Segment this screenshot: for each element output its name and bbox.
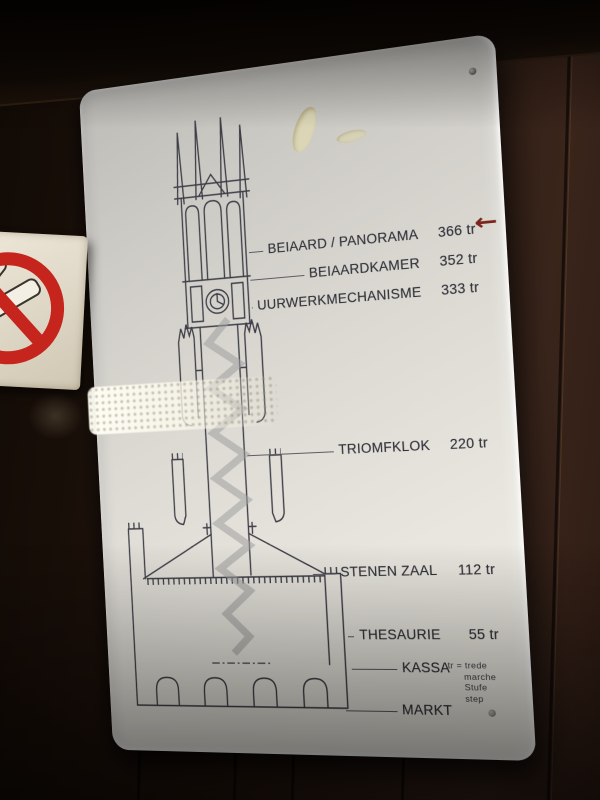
leader-line <box>346 710 397 712</box>
photo-of-belfry-sign: BEIAARD / PANORAMA 366 tr BEIAARDKAMER 3… <box>0 0 600 800</box>
leader-line <box>250 275 304 281</box>
level-label: TRIOMFKLOK <box>338 438 431 458</box>
level-row-kassa: KASSA <box>351 660 450 679</box>
leader-line <box>249 251 263 253</box>
level-steps: 112 tr <box>446 561 496 577</box>
left-arrow-icon: ← <box>474 209 499 234</box>
staircase-zigzag <box>207 318 255 653</box>
leader-line <box>352 669 397 670</box>
level-row-thesaurie: THESAURIE 55 tr <box>347 627 499 646</box>
market-hall <box>128 520 348 708</box>
level-steps: 352 tr <box>429 250 478 270</box>
legend-line: tr = trede <box>447 660 495 671</box>
flash-glow <box>28 392 83 440</box>
belfry-floor-sign: BEIAARD / PANORAMA 366 tr BEIAARDKAMER 3… <box>79 33 536 761</box>
level-steps: 333 tr <box>430 279 479 299</box>
steps-legend: tr = trede marche Stufe step <box>447 660 497 704</box>
legend-line: Stufe <box>464 682 497 693</box>
level-label: KASSA <box>402 660 451 676</box>
leader-line <box>247 451 333 456</box>
wood-plank-gap <box>546 0 572 800</box>
screw <box>488 709 496 716</box>
no-smoking-sign <box>0 230 88 390</box>
legend-line: step <box>465 693 498 704</box>
leader-line <box>313 574 336 575</box>
level-steps: 220 tr <box>439 435 488 453</box>
level-label: THESAURIE <box>359 627 441 643</box>
level-label: MARKT <box>402 702 453 718</box>
level-row-markt: MARKT <box>346 701 453 721</box>
leader-line <box>348 636 355 637</box>
level-steps: 55 tr <box>450 627 500 643</box>
belfry-arches <box>185 198 243 282</box>
wood-plank-highlight <box>550 0 574 800</box>
level-steps: 366 tr <box>427 221 476 241</box>
level-label: STENEN ZAAL <box>340 563 438 580</box>
leader-line <box>252 307 253 308</box>
legend-line: marche <box>464 671 497 682</box>
level-row-stenen-zaal: STENEN ZAAL 112 tr <box>312 561 495 583</box>
tower-lantern <box>171 114 254 282</box>
